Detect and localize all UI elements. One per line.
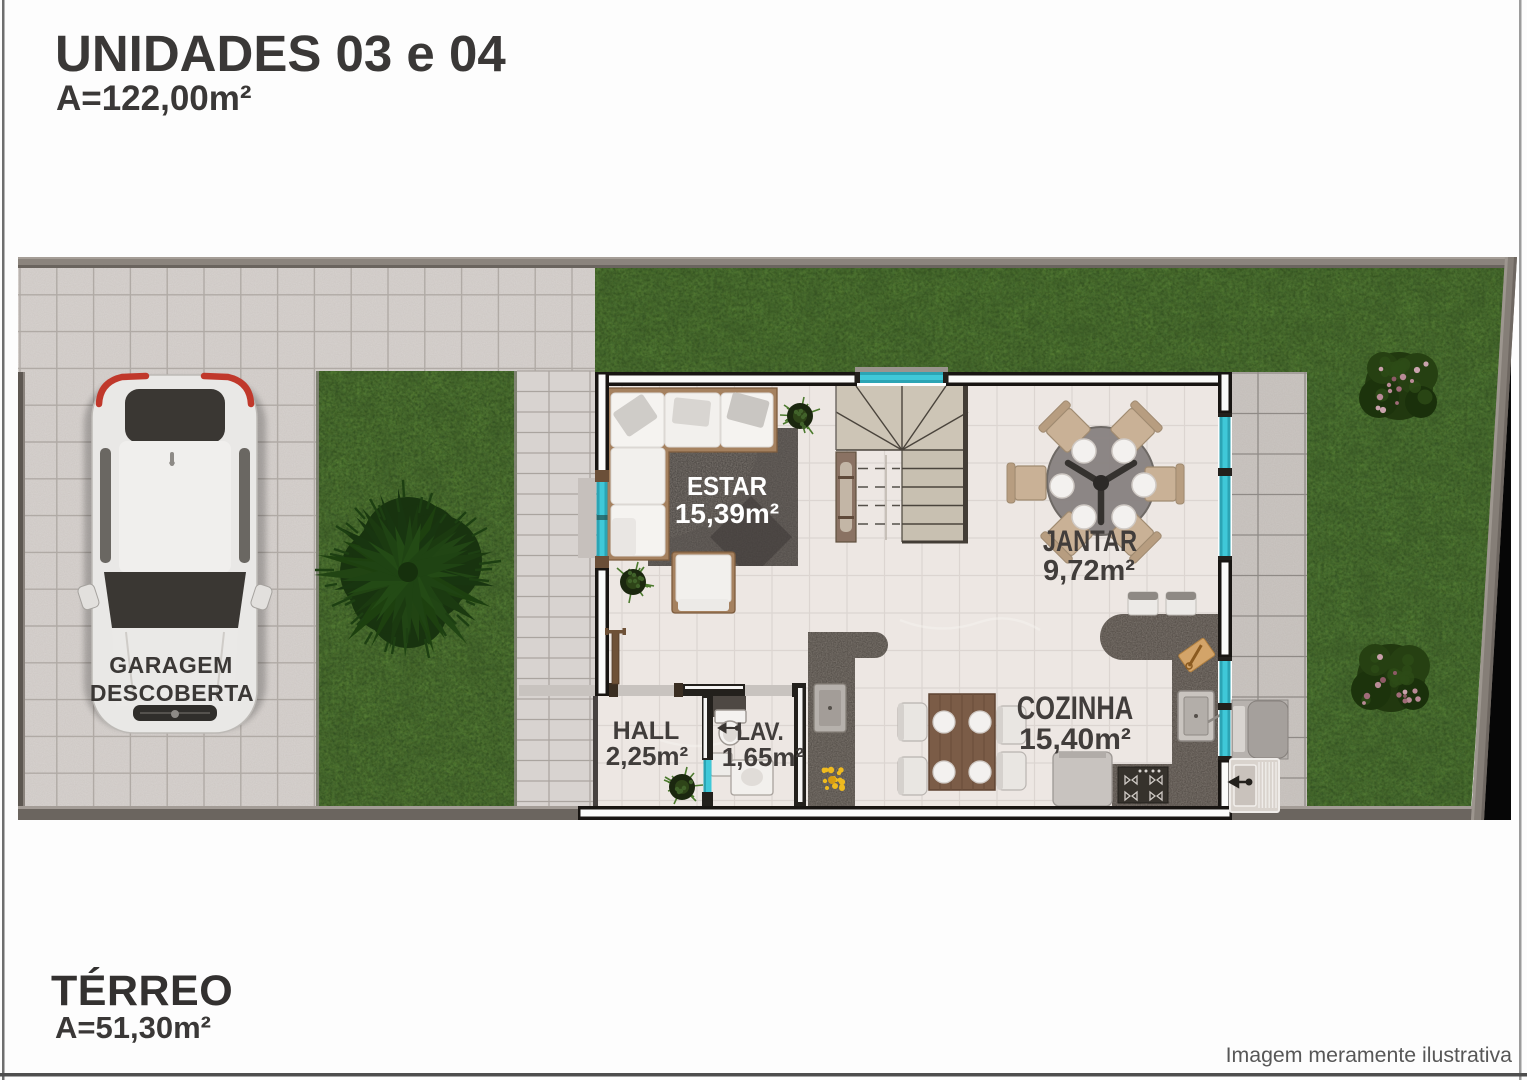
svg-text:COZINHA: COZINHA (1017, 691, 1134, 726)
svg-text:UNIDADES 03 e 04: UNIDADES 03 e 04 (55, 25, 506, 82)
svg-text:A=51,30m²: A=51,30m² (55, 1010, 211, 1045)
svg-text:1,65m²: 1,65m² (722, 742, 805, 772)
svg-text:GARAGEM: GARAGEM (109, 652, 233, 678)
svg-text:DESCOBERTA: DESCOBERTA (90, 680, 254, 706)
svg-text:15,39m²: 15,39m² (675, 498, 779, 529)
svg-text:9,72m²: 9,72m² (1043, 555, 1135, 587)
svg-text:2,25m²: 2,25m² (606, 741, 689, 771)
svg-text:ESTAR: ESTAR (687, 472, 767, 501)
svg-text:JANTAR: JANTAR (1043, 524, 1137, 557)
svg-text:Imagem meramente ilustrativa: Imagem meramente ilustrativa (1226, 1043, 1513, 1067)
svg-text:15,40m²: 15,40m² (1019, 723, 1131, 756)
svg-text:A=122,00m²: A=122,00m² (56, 79, 252, 118)
svg-text:TÉRREO: TÉRREO (51, 967, 233, 1015)
